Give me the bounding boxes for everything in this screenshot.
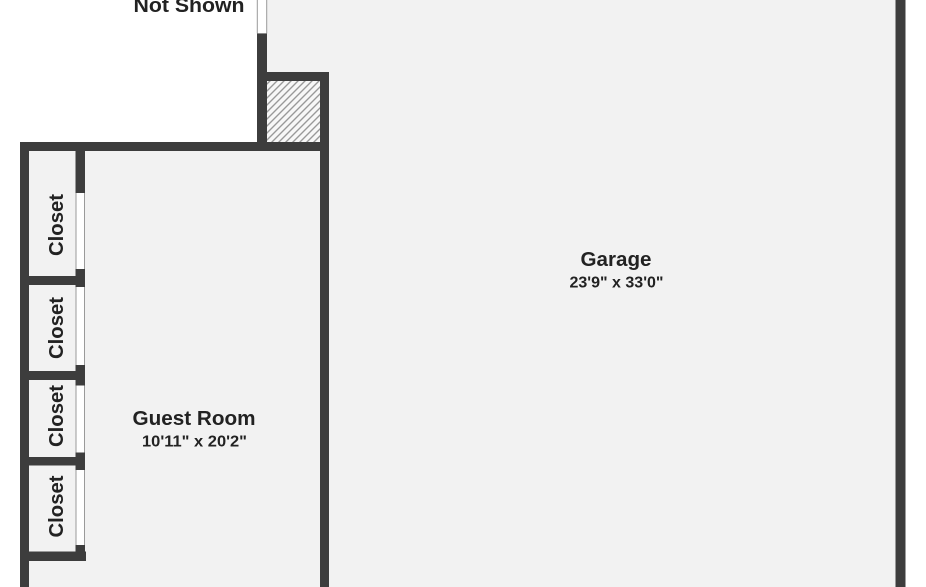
- svg-text:Not Shown: Not Shown: [134, 0, 245, 17]
- svg-text:10'11" x 20'2": 10'11" x 20'2": [142, 434, 247, 451]
- svg-text:Closet: Closet: [46, 194, 68, 256]
- svg-text:Garage: Garage: [581, 249, 652, 271]
- svg-text:Closet: Closet: [46, 475, 68, 537]
- svg-text:23'9" x 33'0": 23'9" x 33'0": [570, 275, 664, 292]
- svg-text:Closet: Closet: [46, 297, 68, 359]
- svg-text:Guest Room: Guest Room: [133, 408, 256, 430]
- svg-text:Closet: Closet: [46, 385, 68, 447]
